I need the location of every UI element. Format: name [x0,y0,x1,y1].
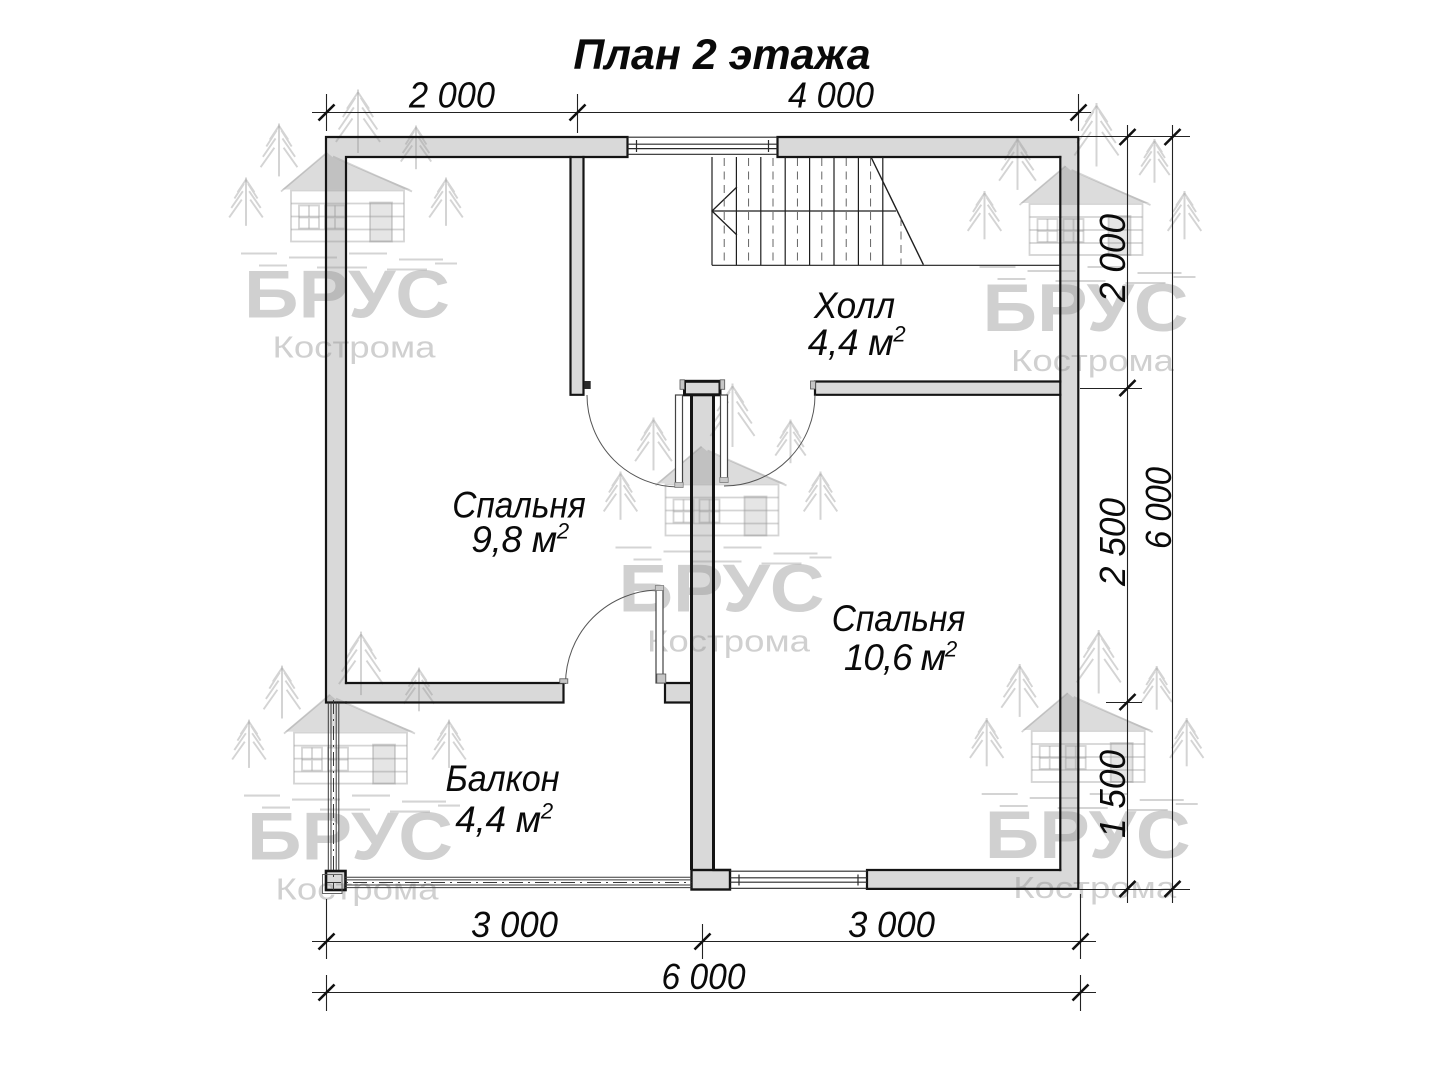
svg-text:3 000: 3 000 [848,904,935,945]
svg-text:4 000: 4 000 [788,75,874,116]
svg-text:2 500: 2 500 [1092,498,1133,587]
svg-text:4,4 м2: 4,4 м2 [455,799,553,841]
svg-text:3 000: 3 000 [471,904,558,945]
svg-text:2 000: 2 000 [1092,214,1133,303]
svg-text:2 000: 2 000 [408,75,495,116]
svg-text:6 000: 6 000 [1138,467,1179,549]
svg-text:6 000: 6 000 [662,956,746,997]
svg-text:План 2 этажа: План 2 этажа [573,31,870,79]
svg-text:Балкон: Балкон [446,758,560,799]
svg-text:Холл: Холл [813,285,895,326]
svg-text:1 500: 1 500 [1092,750,1133,838]
svg-text:Спальня: Спальня [832,598,966,639]
svg-text:4,4 м2: 4,4 м2 [808,322,906,364]
svg-text:10,6 м2: 10,6 м2 [844,637,957,679]
svg-text:9,8 м2: 9,8 м2 [471,519,569,561]
